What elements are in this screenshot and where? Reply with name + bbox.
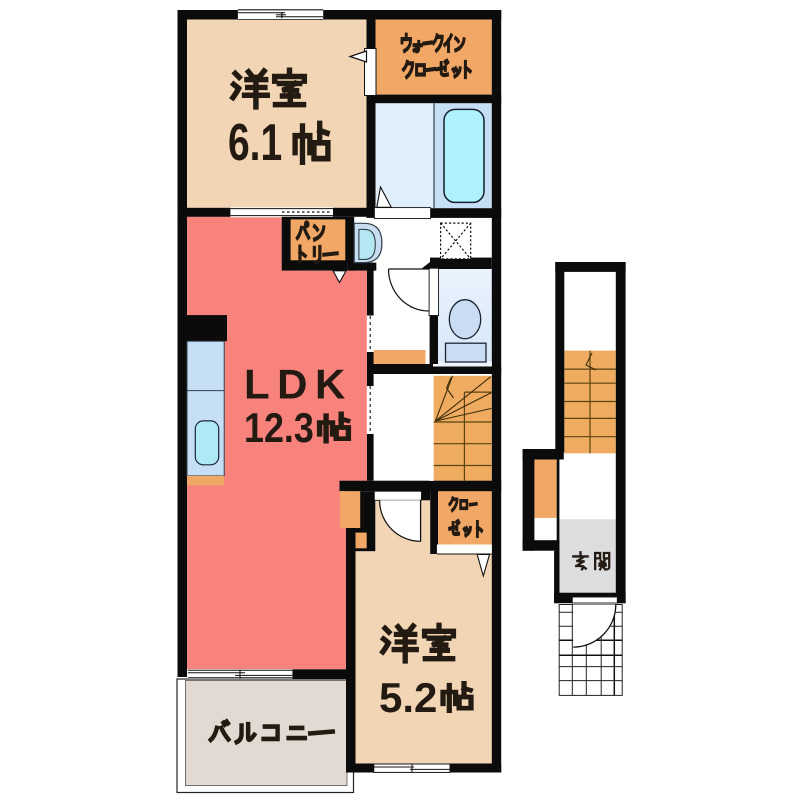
svg-text:12.3: 12.3	[244, 405, 314, 451]
svg-text:5.2: 5.2	[379, 674, 437, 721]
svg-text:LDK: LDK	[244, 361, 353, 408]
svg-text:6.1: 6.1	[228, 112, 282, 171]
